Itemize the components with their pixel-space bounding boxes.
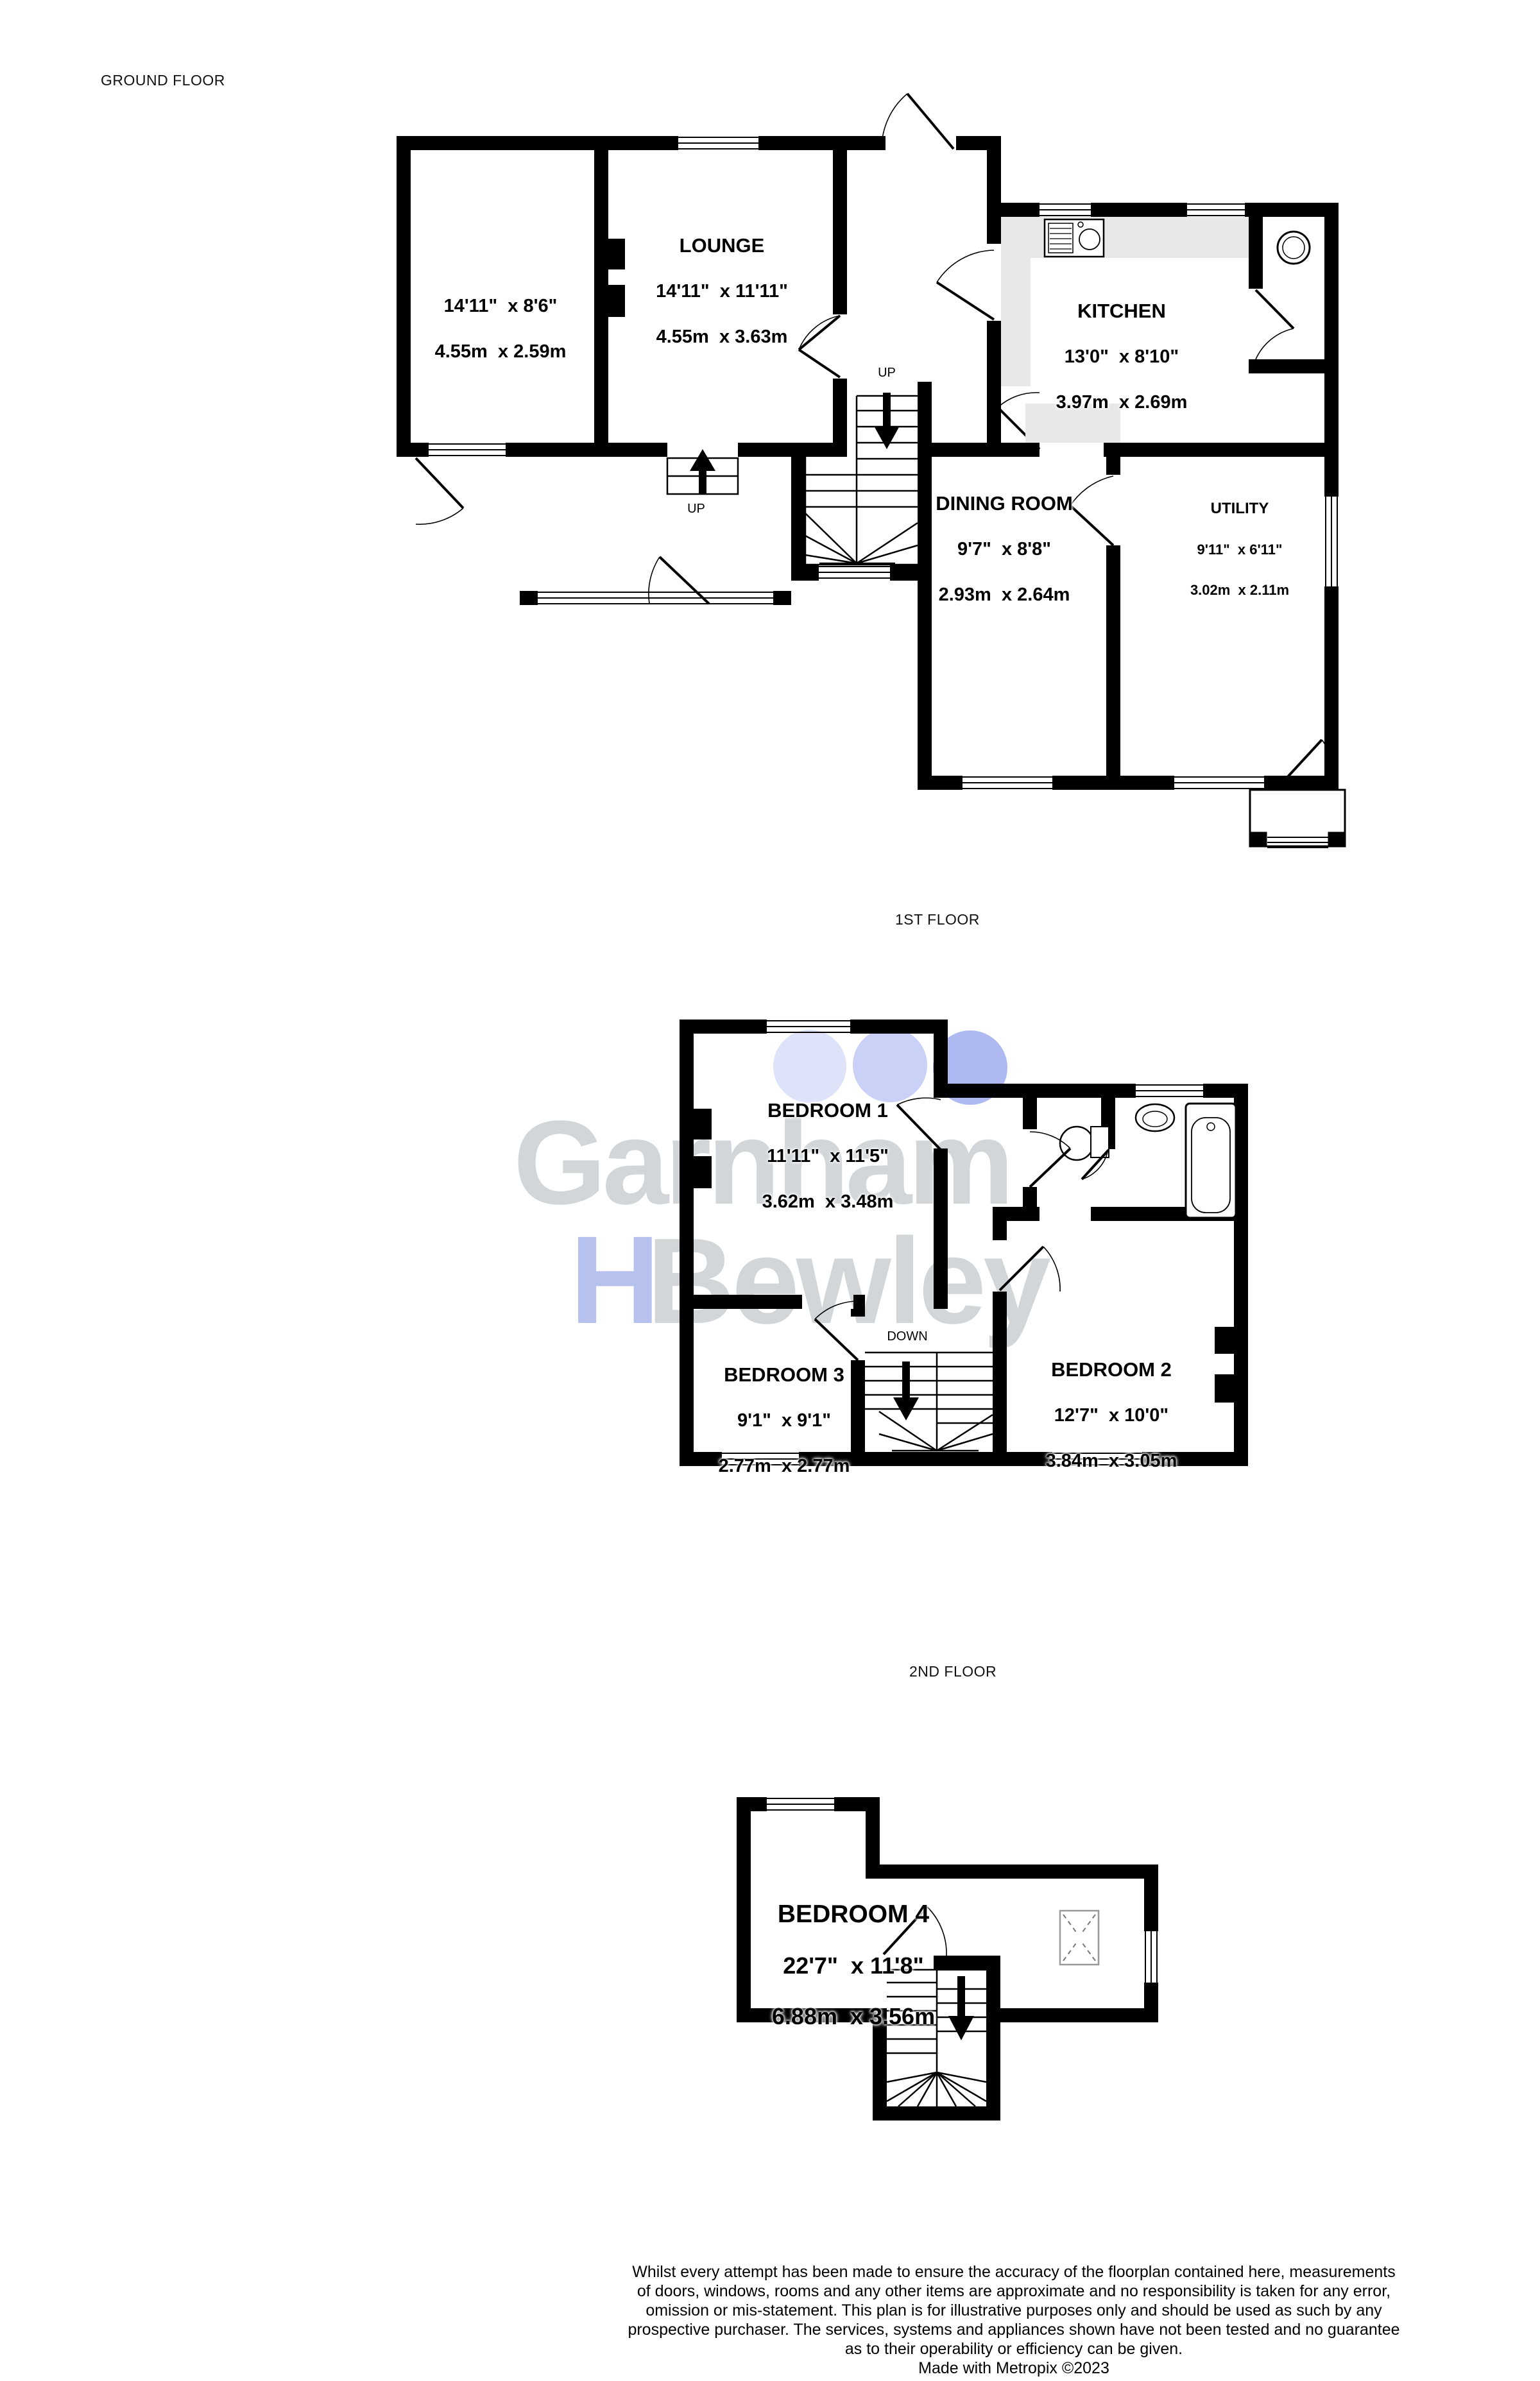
toilet-icon	[1060, 1127, 1109, 1160]
room-metric: 2.77m x 2.77m	[719, 1456, 850, 1478]
room-imperial: 11'11" x 11'5"	[762, 1146, 894, 1168]
room-label-bedroom2: BEDROOM 2 12'7" x 10'0" 3.84m x 3.05m	[1046, 1335, 1177, 1496]
ground-floor-title: GROUND FLOOR	[101, 72, 225, 89]
room-metric: 2.93m x 2.64m	[936, 585, 1073, 606]
room-name: BEDROOM 3	[719, 1363, 850, 1387]
room-imperial: 12'7" x 10'0"	[1046, 1405, 1177, 1427]
room-metric: 6.88m x 3.56m	[772, 2003, 935, 2030]
room-label-bedroom4: BEDROOM 4 22'7" x 11'8" 6.88m x 3.56m	[772, 1876, 935, 2054]
room-name: BEDROOM 4	[772, 1900, 935, 1929]
stair-label-down-second: DOWN	[942, 1957, 982, 1972]
room-imperial: 13'0" x 8'10"	[1056, 346, 1188, 368]
disclaimer: Whilst every attempt has been made to en…	[488, 2262, 1540, 2378]
room-name: BEDROOM 2	[1046, 1358, 1177, 1381]
room-metric: 3.62m x 3.48m	[762, 1191, 894, 1213]
skylight-icon	[1060, 1911, 1099, 1965]
ground-floor-plan	[397, 94, 1345, 848]
up-arrow-icon	[874, 393, 900, 449]
staircase-first	[865, 1353, 993, 1451]
basin-icon	[1136, 1104, 1174, 1131]
staircase-ground	[805, 393, 918, 565]
stair-label-down-first: DOWN	[887, 1329, 927, 1344]
disclaimer-line: Made with Metropix ©2023	[488, 2359, 1540, 2378]
bath-icon	[1186, 1104, 1236, 1218]
room-name: UTILITY	[1190, 500, 1289, 518]
disclaimer-line: prospective purchaser. The services, sys…	[488, 2320, 1540, 2339]
floorplan-page: Garnham H Bewley	[0, 0, 1540, 2381]
second-floor-title: 2ND FLOOR	[909, 1663, 997, 1680]
room-label-bedroom1: BEDROOM 1 11'11" x 11'5" 3.62m x 3.48m	[762, 1075, 894, 1237]
room-label-dining: DINING ROOM 9'7" x 8'8" 2.93m x 2.64m	[936, 468, 1073, 630]
ground-doors	[416, 94, 1335, 789]
disclaimer-line: Whilst every attempt has been made to en…	[488, 2262, 1540, 2282]
room-metric: 3.97m x 2.69m	[1056, 392, 1188, 414]
room-label-reception: 14'11" x 8'6" 4.55m x 2.59m	[435, 272, 567, 387]
room-name: DINING ROOM	[936, 492, 1073, 515]
disclaimer-line: of doors, windows, rooms and any other i…	[488, 2282, 1540, 2301]
room-label-lounge: LOUNGE 14'11" x 11'11" 4.55m x 3.63m	[656, 210, 788, 372]
room-label-utility: UTILITY 9'11" x 6'11" 3.02m x 2.11m	[1190, 476, 1289, 622]
door-arc	[416, 94, 1335, 789]
sink-icon	[1045, 219, 1104, 257]
room-imperial: 9'11" x 6'11"	[1190, 542, 1289, 558]
room-name: KITCHEN	[1056, 300, 1188, 323]
first-floor-title: 1ST FLOOR	[895, 911, 980, 928]
bathroom-fittings	[1060, 1104, 1236, 1218]
disclaimer-line: omission or mis-statement. This plan is …	[488, 2301, 1540, 2320]
room-metric: 4.55m x 2.59m	[435, 341, 567, 363]
door-leaf	[416, 94, 1322, 789]
porch-steps	[667, 449, 738, 494]
room-imperial: 14'11" x 8'6"	[435, 296, 567, 318]
room-metric: 4.55m x 3.63m	[656, 327, 788, 348]
room-metric: 3.84m x 3.05m	[1046, 1451, 1177, 1472]
room-name: LOUNGE	[656, 234, 788, 257]
room-imperial: 14'11" x 11'11"	[656, 281, 788, 303]
room-label-kitchen: KITCHEN 13'0" x 8'10" 3.97m x 2.69m	[1056, 276, 1188, 438]
down-arrow-icon	[893, 1361, 919, 1421]
tank-icon	[1278, 232, 1310, 264]
stair-label-up-porch: UP	[687, 502, 705, 516]
room-imperial: 9'1" x 9'1"	[719, 1410, 850, 1432]
kitchen-counter	[1001, 217, 1249, 258]
room-name: BEDROOM 1	[762, 1099, 894, 1122]
stair-label-up-main: UP	[878, 366, 896, 380]
room-imperial: 22'7" x 11'8"	[772, 1952, 935, 1979]
room-metric: 3.02m x 2.11m	[1190, 582, 1289, 599]
room-imperial: 9'7" x 8'8"	[936, 539, 1073, 561]
kitchen-counter	[1001, 258, 1031, 386]
disclaimer-line: as to their operability or efficiency ca…	[488, 2339, 1540, 2359]
room-label-bedroom3: BEDROOM 3 9'1" x 9'1" 2.77m x 2.77m	[719, 1340, 850, 1501]
